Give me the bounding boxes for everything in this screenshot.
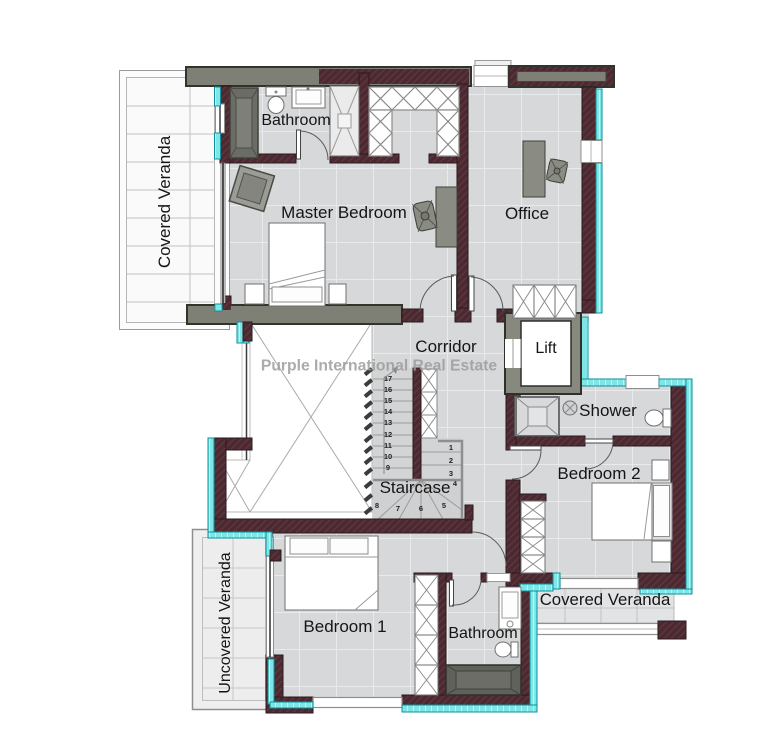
svg-text:7: 7 (396, 504, 400, 513)
svg-text:Bedroom 2: Bedroom 2 (557, 464, 640, 483)
svg-text:Staircase: Staircase (380, 478, 451, 497)
svg-text:Shower: Shower (579, 401, 637, 420)
svg-text:13: 13 (384, 418, 392, 427)
svg-text:5: 5 (442, 501, 446, 510)
svg-text:Corridor: Corridor (415, 337, 477, 356)
svg-text:Office: Office (505, 204, 549, 223)
svg-text:14: 14 (384, 407, 393, 416)
svg-text:9: 9 (386, 463, 390, 472)
svg-text:16: 16 (384, 385, 392, 394)
svg-text:2: 2 (449, 456, 453, 465)
svg-text:Bedroom 1: Bedroom 1 (303, 617, 386, 636)
svg-text:Lift: Lift (535, 340, 557, 357)
svg-text:Uncovered Veranda: Uncovered Veranda (217, 552, 234, 694)
svg-text:1: 1 (449, 443, 453, 452)
svg-text:Covered Veranda: Covered Veranda (540, 590, 671, 609)
svg-text:3: 3 (449, 469, 453, 478)
svg-text:8: 8 (375, 501, 379, 510)
svg-text:11: 11 (384, 441, 392, 450)
svg-text:Bathroom: Bathroom (448, 625, 517, 642)
svg-text:Covered Veranda: Covered Veranda (155, 135, 174, 268)
svg-text:Purple International Real Esta: Purple International Real Estate (261, 358, 498, 375)
svg-text:12: 12 (384, 430, 392, 439)
svg-text:6: 6 (419, 504, 423, 513)
svg-text:10: 10 (384, 452, 392, 461)
svg-text:Master Bedroom: Master Bedroom (281, 203, 407, 222)
svg-text:15: 15 (384, 396, 392, 405)
svg-text:Bathroom: Bathroom (261, 112, 330, 129)
